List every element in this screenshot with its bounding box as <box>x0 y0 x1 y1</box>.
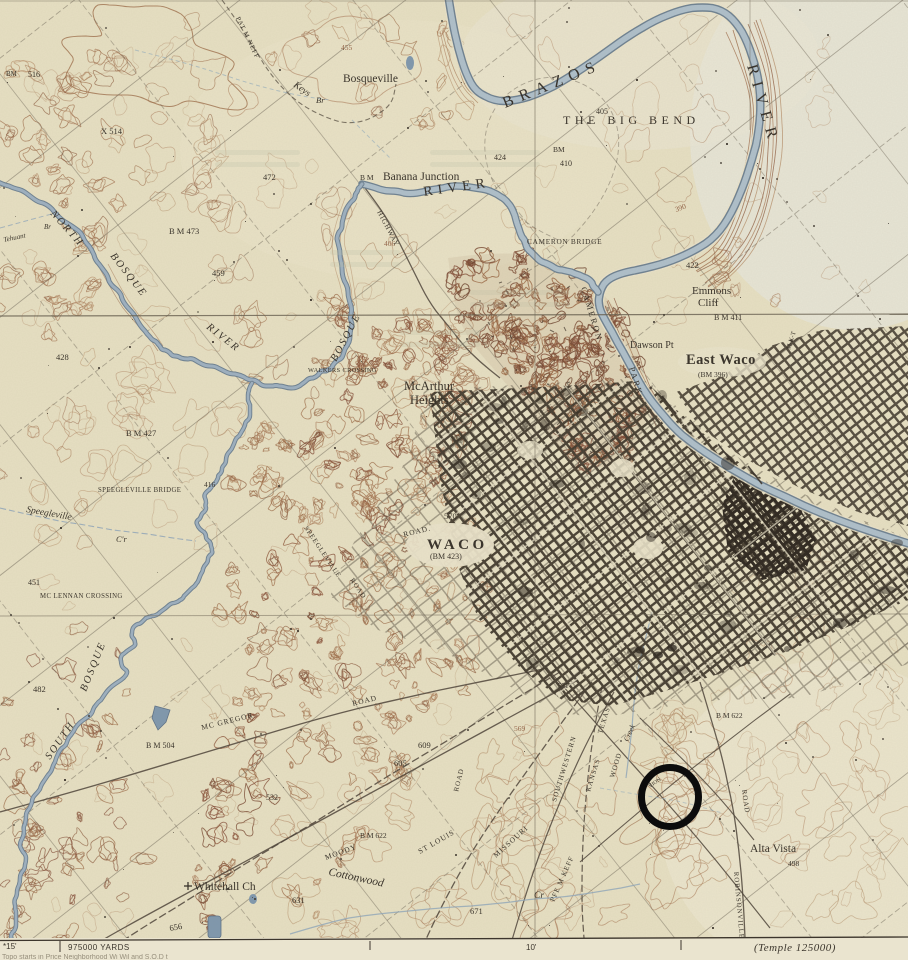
svg-text:C'r: C'r <box>116 534 127 544</box>
svg-text:671: 671 <box>470 906 483 916</box>
svg-text:MC LENNAN CROSSING: MC LENNAN CROSSING <box>40 593 123 600</box>
svg-text:WACO: WACO <box>427 537 488 553</box>
svg-text:609: 609 <box>418 740 431 750</box>
svg-text:Alta Vista: Alta Vista <box>750 843 796 855</box>
svg-text:405: 405 <box>596 107 608 116</box>
svg-text:Topo starts in Price Neig: Topo starts in Price Neighborhood Wi Wil… <box>2 954 168 960</box>
svg-text:Dawson Pt: Dawson Pt <box>630 340 674 351</box>
svg-text:B M 622: B M 622 <box>360 831 387 840</box>
svg-text:975000 YARDS: 975000 YARDS <box>68 943 130 952</box>
svg-text:WALKERS CROSSING: WALKERS CROSSING <box>308 367 377 374</box>
svg-text:472: 472 <box>263 172 276 182</box>
svg-text:B M 504: B M 504 <box>146 741 174 750</box>
svg-text:Br: Br <box>316 95 325 105</box>
svg-text:(Temple 125000): (Temple 125000) <box>754 942 836 954</box>
svg-text:(BM 423): (BM 423) <box>430 552 462 561</box>
svg-text:422: 422 <box>686 260 699 270</box>
svg-text:Heights: Heights <box>410 393 449 407</box>
svg-text:Cliff: Cliff <box>698 297 719 309</box>
svg-text:(BM 396): (BM 396) <box>698 370 728 379</box>
svg-text:451: 451 <box>28 578 40 587</box>
svg-text:THE BIG BEND: THE BIG BEND <box>563 113 700 127</box>
svg-text:East Waco: East Waco <box>686 352 756 368</box>
svg-text:Cr: Cr <box>534 891 544 901</box>
svg-text:570: 570 <box>444 511 457 521</box>
svg-text:Bosqueville: Bosqueville <box>343 73 398 85</box>
svg-text:Banana Junction: Banana Junction <box>383 171 460 183</box>
svg-text:631: 631 <box>292 895 305 905</box>
svg-text:416: 416 <box>204 480 216 489</box>
svg-text:Br: Br <box>44 223 51 231</box>
svg-text:B M 473: B M 473 <box>169 226 199 236</box>
svg-text:B M: B M <box>360 173 374 182</box>
svg-text:X 514: X 514 <box>101 126 123 136</box>
svg-text:532: 532 <box>266 793 278 802</box>
svg-text:*15': *15' <box>3 942 17 951</box>
svg-text:605: 605 <box>394 758 407 768</box>
svg-text:498: 498 <box>788 859 800 868</box>
svg-text:SPEEGLEVILLE BRIDGE: SPEEGLEVILLE BRIDGE <box>98 487 181 494</box>
svg-text:Emmons: Emmons <box>692 285 731 297</box>
svg-text:Whitehall Ch: Whitehall Ch <box>194 881 256 893</box>
svg-text:B M 427: B M 427 <box>126 428 156 438</box>
svg-text:B M 411: B M 411 <box>714 313 742 322</box>
svg-text:428: 428 <box>56 352 69 362</box>
svg-text:516: 516 <box>28 70 40 79</box>
svg-text:482: 482 <box>33 684 46 694</box>
svg-text:569: 569 <box>514 724 526 733</box>
svg-text:McArthur: McArthur <box>404 379 455 393</box>
svg-text:410: 410 <box>560 159 572 168</box>
svg-text:455: 455 <box>341 43 353 52</box>
svg-text:459: 459 <box>212 268 225 278</box>
svg-text:424: 424 <box>494 153 506 162</box>
svg-text:CAMERON BRIDGE: CAMERON BRIDGE <box>527 237 602 246</box>
svg-text:BM: BM <box>553 145 565 154</box>
svg-text:10': 10' <box>526 943 537 952</box>
svg-text:BM: BM <box>6 70 18 78</box>
svg-text:531: 531 <box>558 682 569 690</box>
svg-text:B M 622: B M 622 <box>716 711 743 720</box>
